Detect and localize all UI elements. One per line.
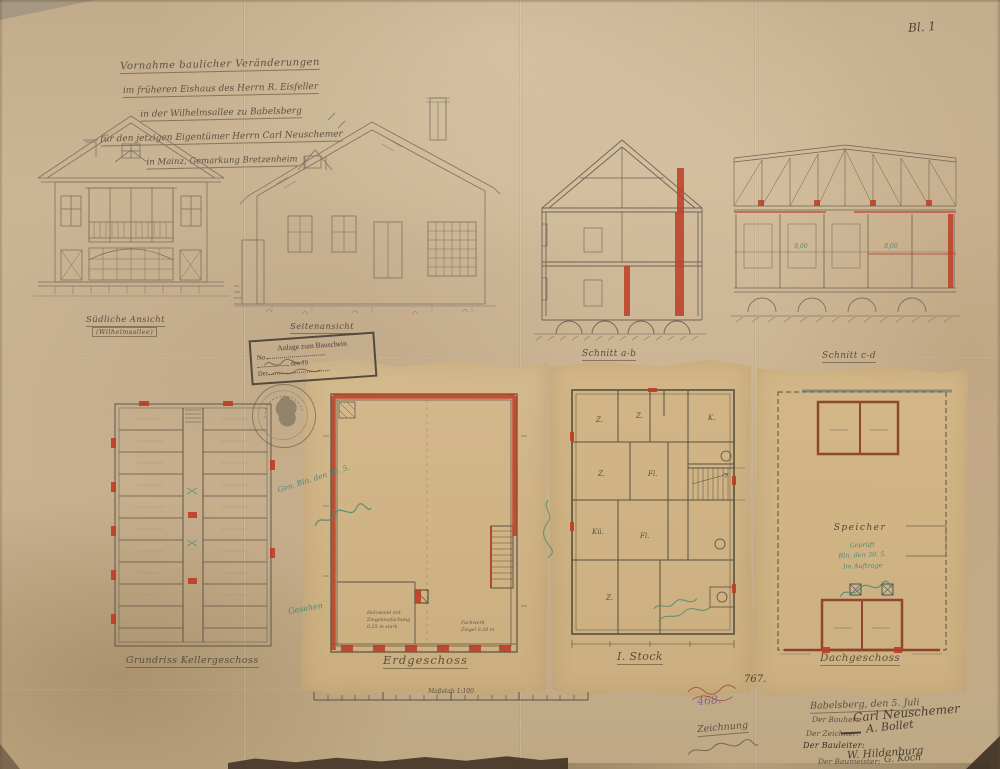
review-text: Zeichnung: [697, 720, 749, 737]
review-note: Zeichnung: [697, 720, 749, 735]
room-label: Z.: [605, 594, 613, 602]
paper-edge-shadow: [996, 0, 1000, 769]
caption-text: Südliche Ansicht: [86, 315, 165, 327]
handwritten-entry-squiggle: [260, 347, 352, 379]
room-label: K.: [707, 414, 715, 422]
plan-note: 0,25 m stark: [367, 624, 398, 630]
red-chimney-marks: [624, 168, 684, 316]
caption-text: Grundriss Kellergeschoss: [126, 655, 259, 668]
torn-corner: [0, 0, 95, 20]
torn-corner: [0, 744, 20, 769]
elevation-front-drawing: [28, 108, 236, 320]
caption-text: Schnitt c-d: [822, 351, 876, 363]
pencil-number: 767.: [744, 674, 766, 685]
caption-elevation-side: Seitenansicht: [290, 322, 354, 332]
caption-elevation-front: Südliche Ansicht: [86, 315, 165, 325]
scale-bar: Maßstab 1:100: [308, 686, 594, 712]
caption-text: Seitenansicht: [290, 322, 354, 334]
green-dimension: 8,00: [884, 243, 898, 250]
caption-elevation-front-sub: (Wilhelmsallee): [92, 327, 157, 337]
room-label: Fl.: [639, 532, 649, 540]
caption-text: I. Stock: [617, 650, 663, 665]
title-line: Vornahme baulicher Veränderungen: [120, 57, 320, 74]
approval-tick-marks: [328, 113, 345, 128]
caption-text: Schnitt a-b: [582, 349, 636, 361]
paper-edge-shadow: [0, 0, 3, 769]
torn-edge: [228, 754, 568, 769]
plan-note: Holzwand mit: [366, 610, 401, 616]
caption-text: Dachgeschoss: [820, 652, 900, 666]
plan-note: Ziegel 0,38 m: [460, 627, 495, 633]
room-label: Z.: [597, 470, 605, 478]
caption-section-cd: Schnitt c-d: [822, 351, 876, 361]
dach-plan-drawing: Speicher: [762, 378, 962, 670]
green-dimension: 8,00: [794, 243, 808, 250]
caption-section-ab: Schnitt a-b: [582, 349, 636, 359]
red-door-marks: [111, 401, 275, 624]
approval-line: Geprüft: [849, 541, 875, 550]
room-label: Z.: [635, 412, 643, 420]
torn-edge: [560, 763, 990, 769]
approval-line: Im Auftrage: [843, 561, 883, 570]
drawing-sheet: Vornahme baulicher Veränderungen im früh…: [0, 0, 1000, 769]
plan-note: Fachwerk: [460, 620, 485, 626]
caption-dach: Dachgeschoss: [820, 652, 900, 664]
elevation-side-drawing: [232, 92, 504, 347]
red-beam-marks: [758, 200, 953, 288]
section-cd-drawing: 8,00 8,00: [726, 132, 964, 346]
caption-keller: Grundriss Kellergeschoss: [126, 655, 259, 666]
approval-line: Bln. den 30. 5.: [838, 551, 886, 561]
room-label: Speicher: [834, 523, 887, 533]
caption-stock: I. Stock: [617, 650, 663, 663]
room-label: Z.: [595, 416, 603, 424]
room-label: Kü.: [591, 528, 604, 536]
approval-signature-squiggle: [540, 498, 556, 560]
sheet-number: Bl. 1: [908, 19, 937, 35]
keller-plan-drawing: [103, 392, 288, 660]
approval-stamp-note: Geprüft Bln. den 30. 5. Im Auftrage: [809, 538, 915, 573]
room-label: Fl.: [647, 470, 657, 478]
pencil-signature-squiggle: [685, 737, 760, 760]
plan-note: Ziegelausfachung: [366, 617, 410, 623]
red-pencil-squiggle: [685, 680, 746, 704]
red-beam-lines: [734, 212, 956, 254]
paper-edge-shadow: [0, 0, 1000, 3]
caption-text: Erdgeschoss: [383, 653, 468, 669]
section-ab-drawing: [528, 128, 712, 346]
caption-erdgeschoss: Erdgeschoss: [383, 653, 468, 667]
